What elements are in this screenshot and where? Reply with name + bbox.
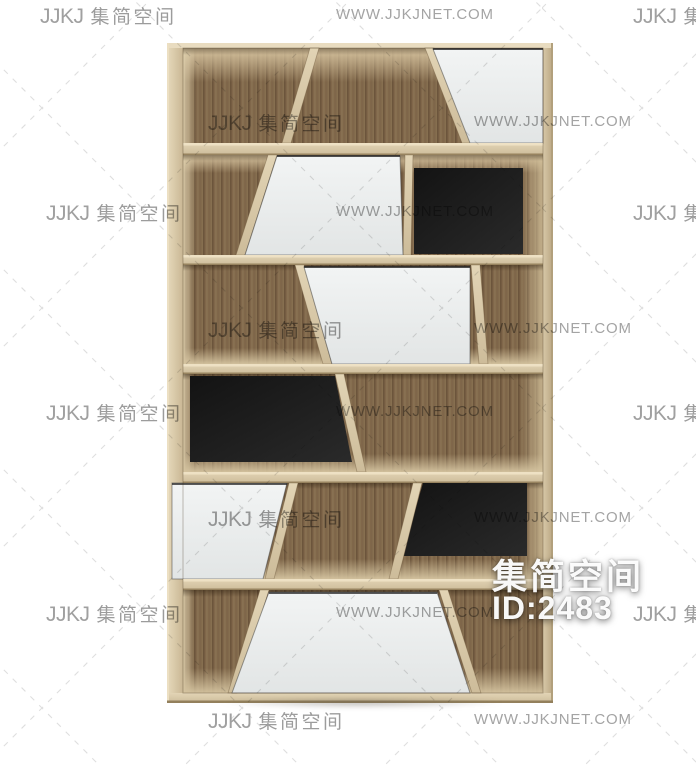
brand-watermark: JJKJ集简空间 xyxy=(40,2,177,29)
brand-watermark: JJKJ集简空间 xyxy=(633,600,696,627)
brand-watermark: JJKJ集简空间 xyxy=(633,199,696,226)
bookshelf-product-image xyxy=(167,43,553,703)
brand-watermark: JJKJ集简空间 xyxy=(633,2,696,29)
brand-watermark: JJKJ集简空间 xyxy=(46,199,183,226)
brand-watermark: JJKJ集简空间 xyxy=(633,399,696,426)
url-watermark: WWW.JJKJNET.COM xyxy=(336,6,494,23)
product-page: JJKJ集简空间 WWW.JJKJNET.COM JJKJ集简空间 JJKJ集简… xyxy=(0,0,696,765)
bookshelf-render xyxy=(167,43,553,703)
brand-watermark: JJKJ集简空间 xyxy=(46,600,183,627)
watermark-row: JJKJ集简空间 WWW.JJKJNET.COM JJKJ集简空间 xyxy=(0,2,696,26)
url-watermark: WWW.JJKJNET.COM xyxy=(474,711,632,728)
brand-watermark: JJKJ集简空间 xyxy=(46,399,183,426)
cabinet-floor-shadow xyxy=(169,699,553,713)
